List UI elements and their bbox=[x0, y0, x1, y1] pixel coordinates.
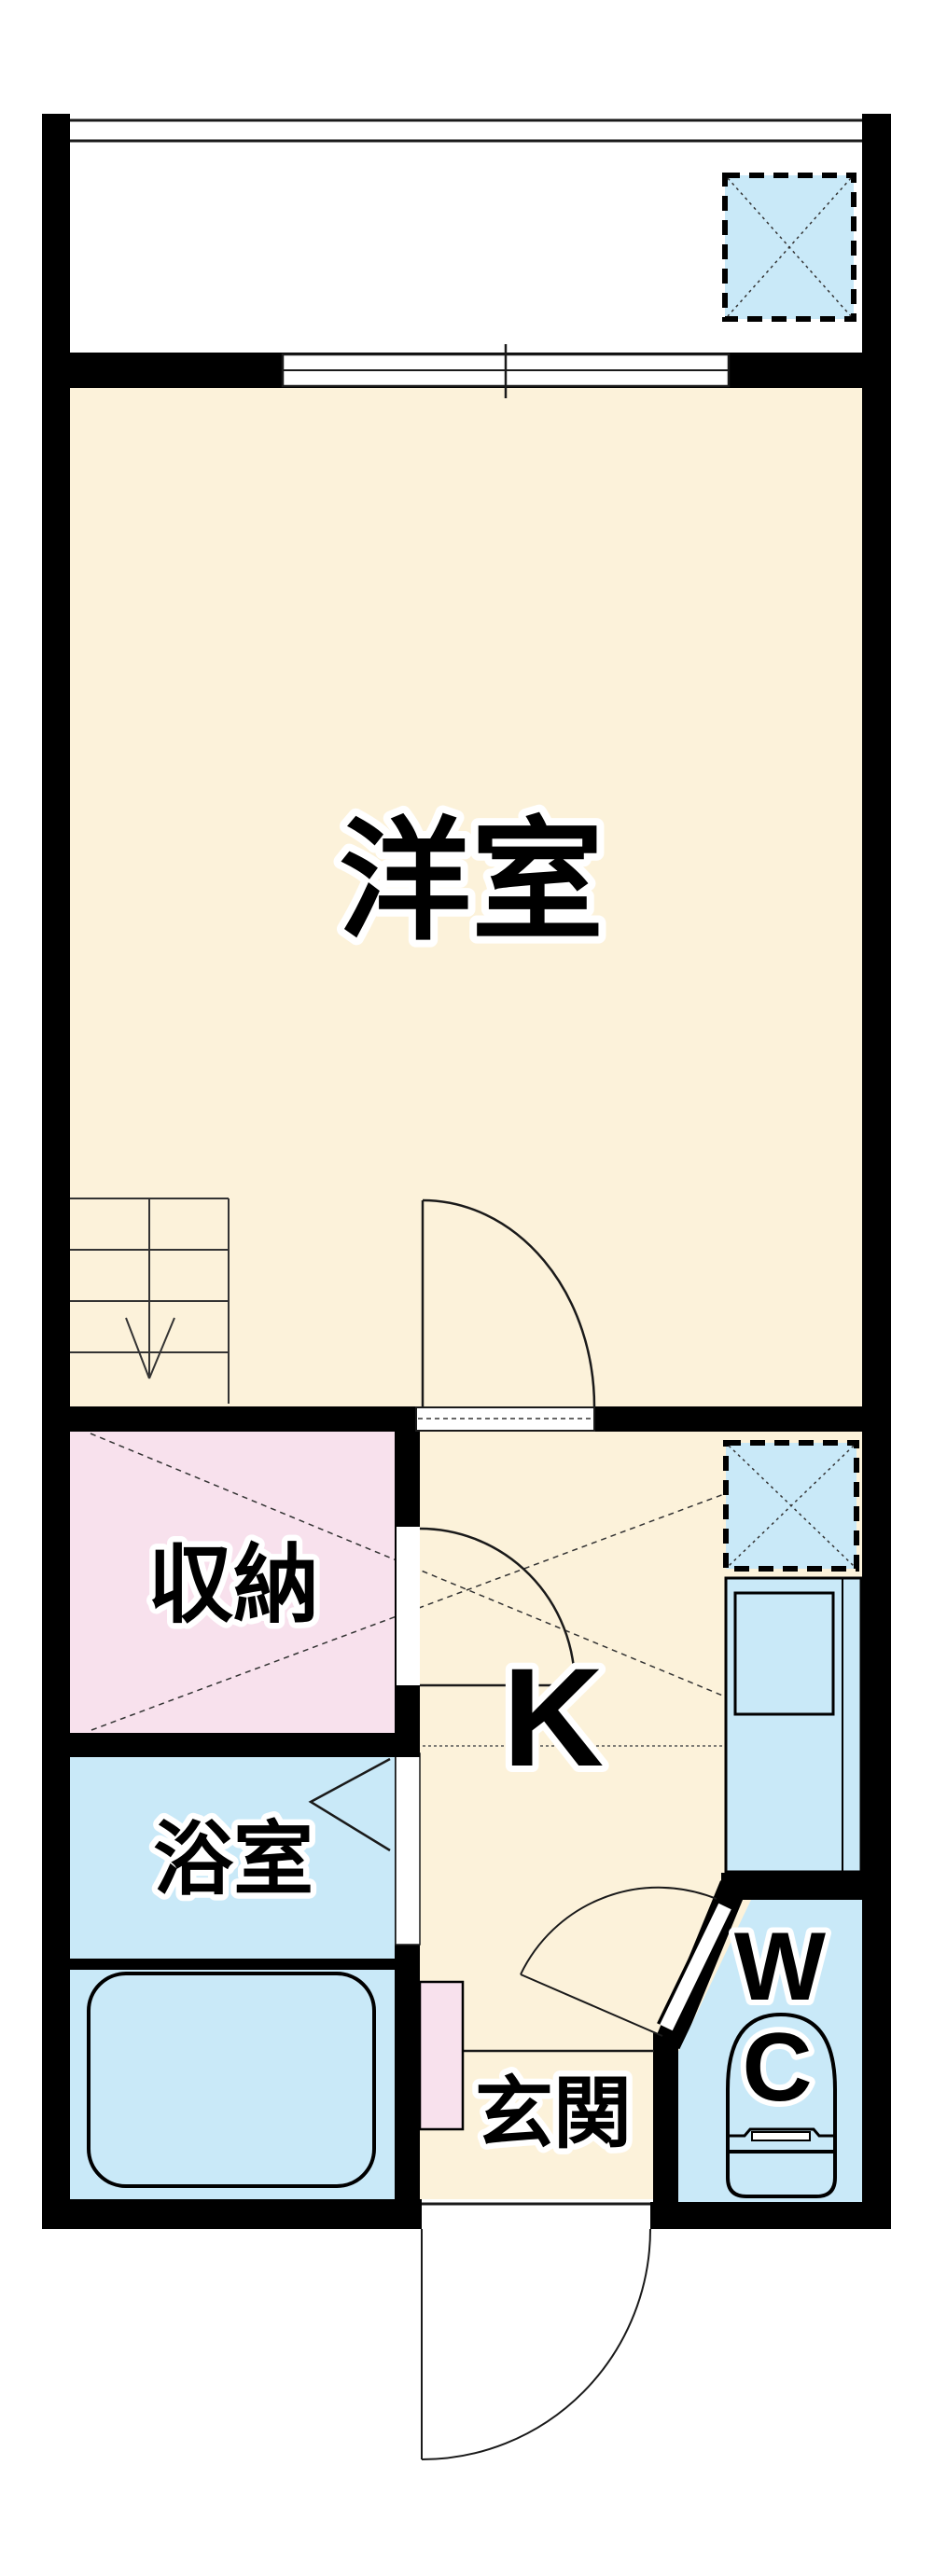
washing-machine-pad bbox=[725, 175, 854, 319]
kitchen-label: K bbox=[503, 1639, 604, 1795]
wc-label-w: W bbox=[734, 1913, 827, 2021]
wc-label-c: C bbox=[742, 2014, 812, 2122]
floor-plan-canvas: 洋室 収納 浴室 K 玄関 W C bbox=[0, 0, 933, 2576]
bathtub-area-floor bbox=[70, 1970, 395, 2199]
mid-wall bbox=[42, 1406, 891, 1432]
entrance-mat bbox=[420, 1982, 463, 2129]
inner-vertical-wall bbox=[395, 1432, 420, 2199]
bathroom-label: 浴室 bbox=[153, 1815, 313, 1904]
entrance-label: 玄関 bbox=[475, 2070, 632, 2157]
western-room-label: 洋室 bbox=[339, 808, 604, 956]
kitchen-sink-unit bbox=[726, 1578, 861, 1872]
storage-label: 収納 bbox=[147, 1538, 319, 1633]
refrigerator-pad bbox=[726, 1443, 856, 1569]
bathroom-tub-divider-wall bbox=[70, 1959, 395, 1970]
outer-wall-bottom-left bbox=[42, 2199, 422, 2229]
storage-door-opening bbox=[397, 1527, 420, 1685]
toilet-seat-hinge bbox=[752, 2132, 810, 2140]
kitchen-counter bbox=[726, 1578, 861, 1872]
outer-wall-right bbox=[862, 114, 891, 2229]
floor-plan: 洋室 収納 浴室 K 玄関 W C bbox=[0, 0, 933, 2576]
storage-bathroom-wall bbox=[42, 1733, 420, 1757]
outer-wall-left bbox=[42, 114, 70, 2229]
wc-left-wall bbox=[653, 2033, 678, 2229]
outer-wall-bottom-right bbox=[650, 2202, 891, 2229]
bathroom-door-leaf bbox=[396, 1753, 420, 1945]
